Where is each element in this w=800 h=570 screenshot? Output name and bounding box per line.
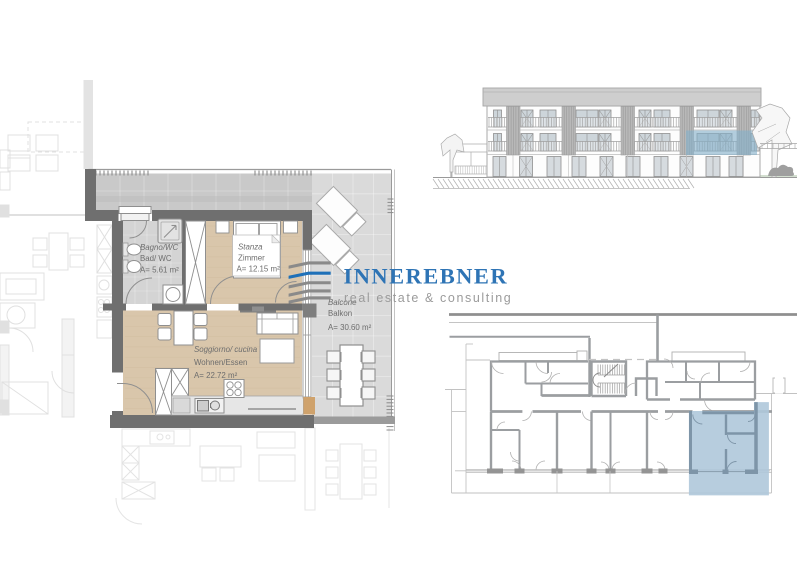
svg-text:A= 12.15 m²: A= 12.15 m² (237, 265, 281, 274)
svg-text:A= 5.61 m²: A= 5.61 m² (140, 266, 179, 275)
svg-text:Balkon: Balkon (328, 309, 352, 318)
svg-text:real estate & consulting: real estate & consulting (344, 291, 512, 305)
svg-text:Bad/ WC: Bad/ WC (140, 254, 172, 263)
svg-text:A= 22.72 m²: A= 22.72 m² (194, 371, 238, 380)
svg-text:Wohnen/Essen: Wohnen/Essen (194, 358, 247, 367)
svg-text:Zimmer: Zimmer (238, 254, 265, 263)
svg-text:Bagno/WC: Bagno/WC (140, 243, 178, 252)
svg-text:INNEREBNER: INNEREBNER (344, 264, 509, 289)
svg-text:Soggiorno/ cucina: Soggiorno/ cucina (194, 345, 258, 354)
svg-text:Stanza: Stanza (238, 243, 263, 252)
svg-text:A= 30.60 m²: A= 30.60 m² (328, 323, 372, 332)
